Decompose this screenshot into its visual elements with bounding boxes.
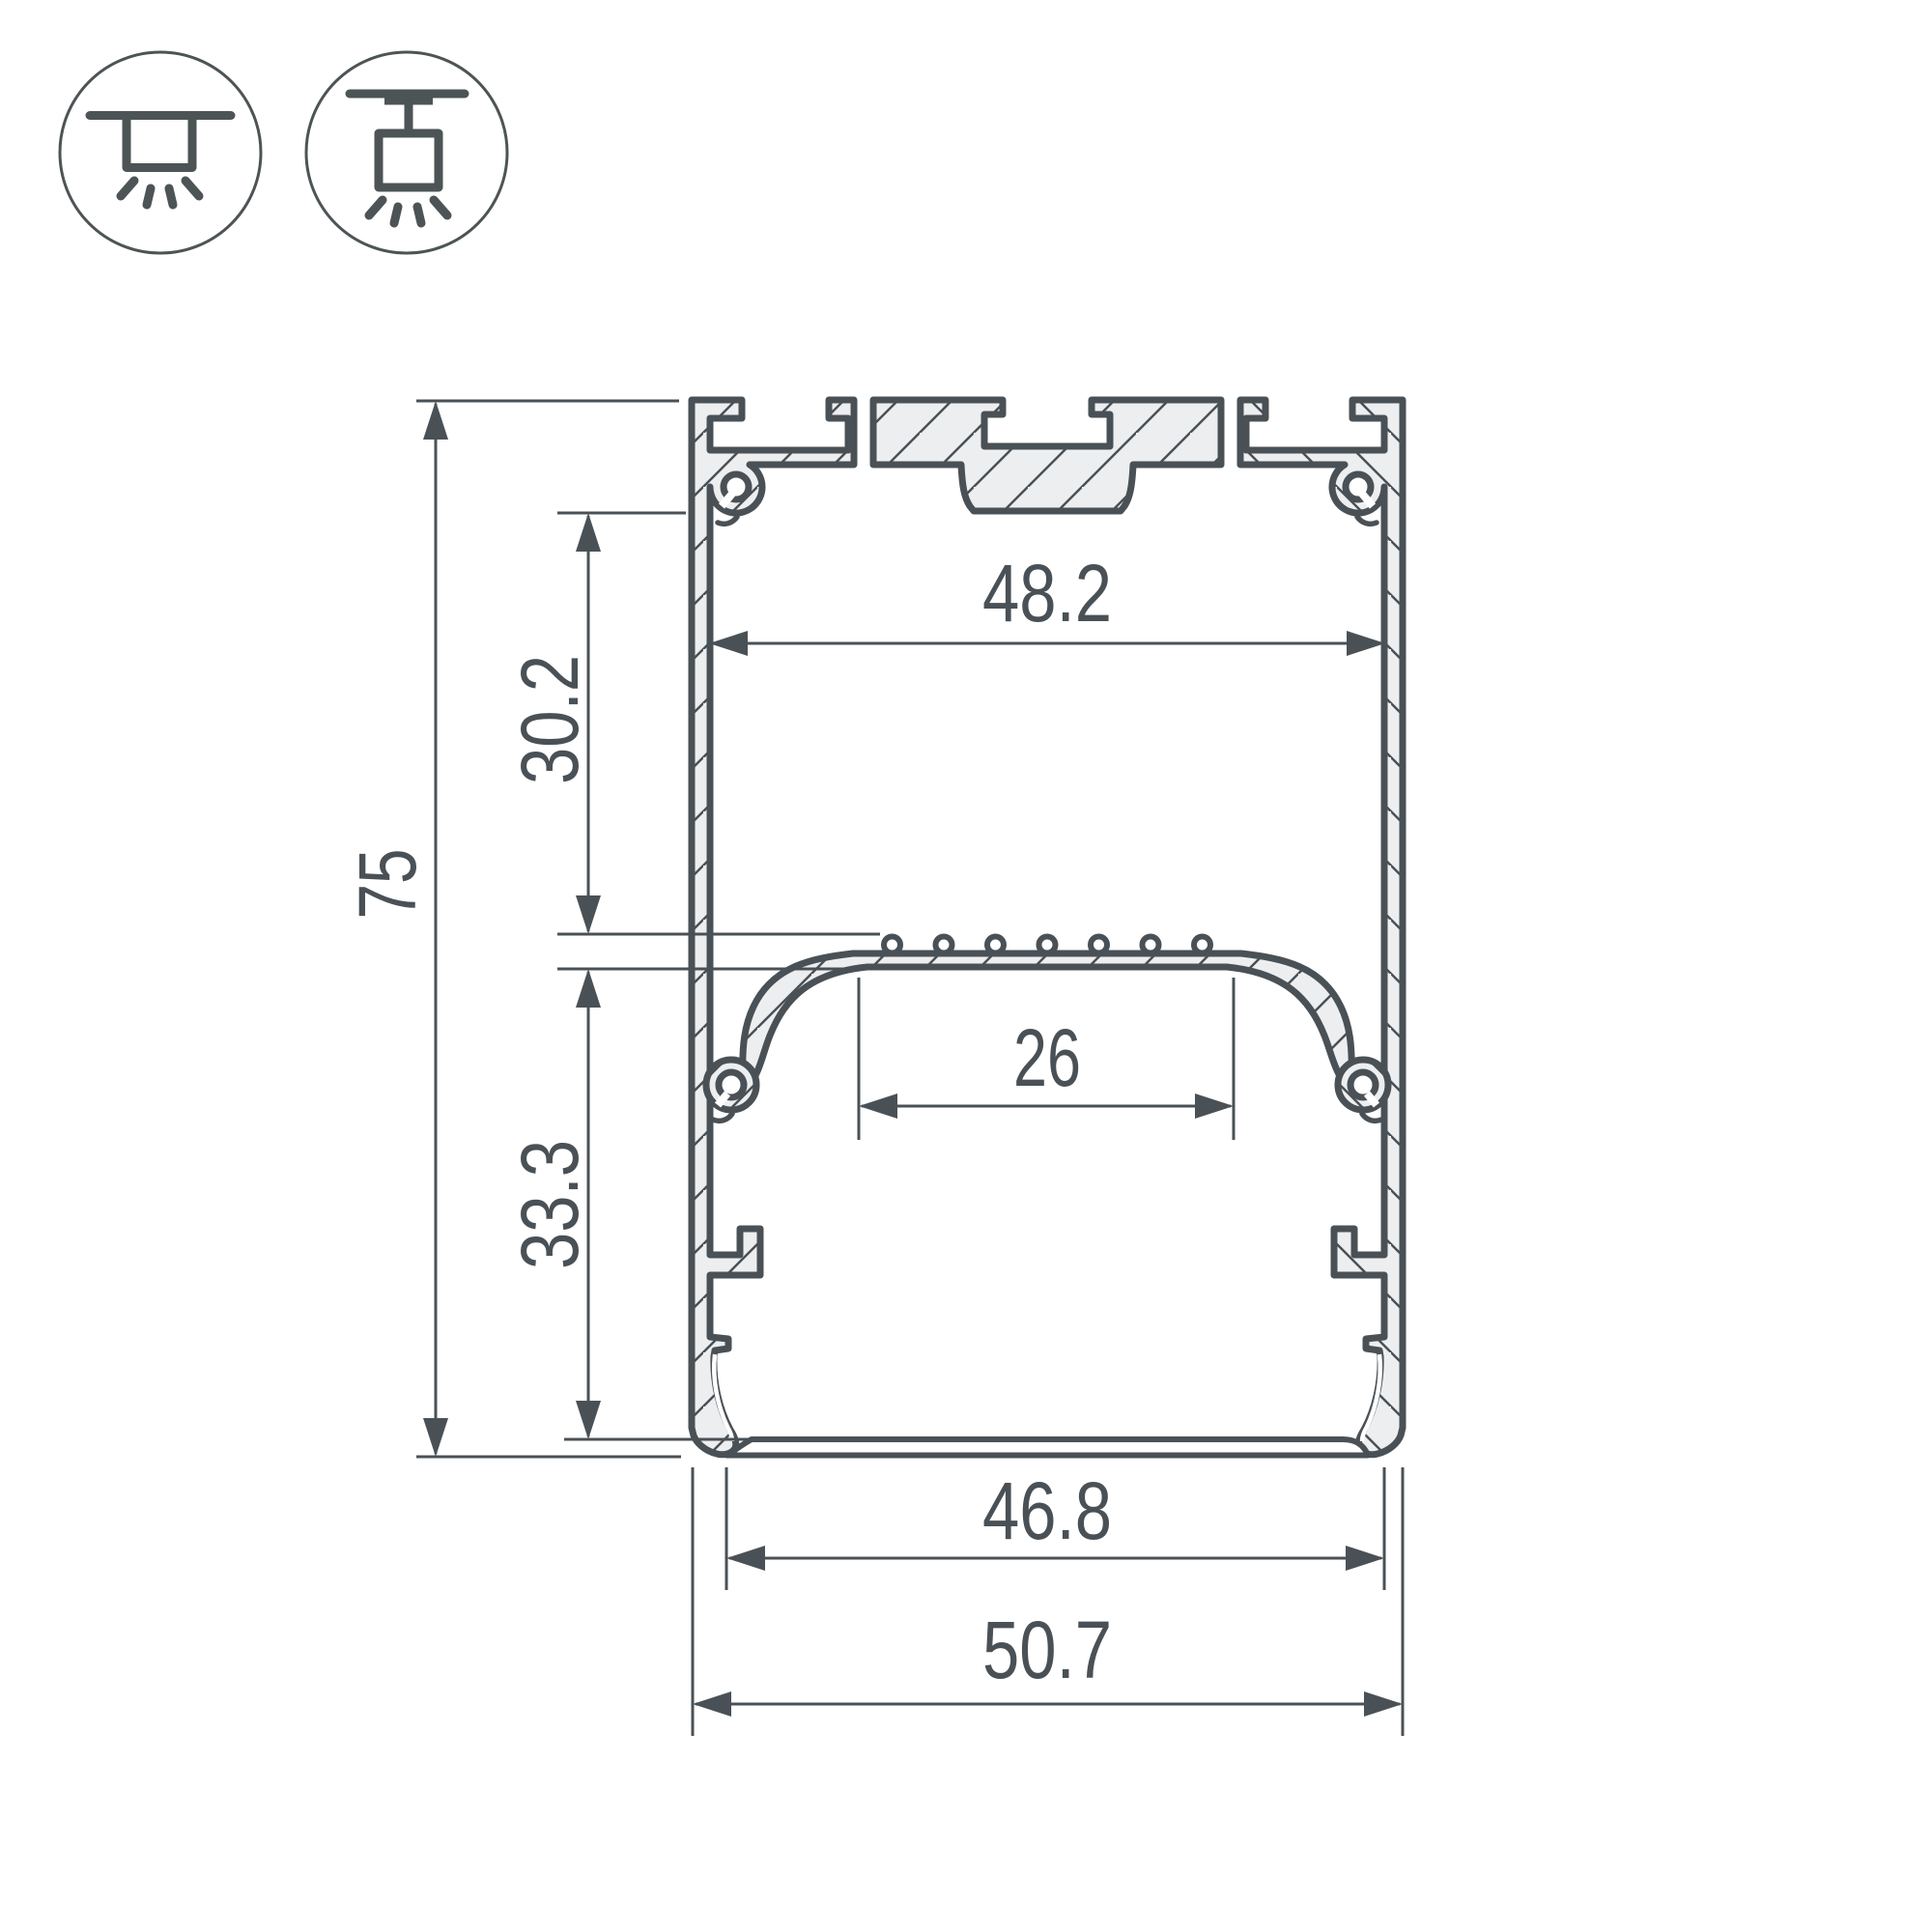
svg-text:75: 75 [342,849,433,920]
svg-text:33.3: 33.3 [504,1140,595,1269]
svg-text:26: 26 [1013,1012,1081,1103]
svg-text:48.2: 48.2 [982,548,1112,639]
svg-text:46.8: 46.8 [982,1465,1112,1556]
svg-text:30.2: 30.2 [504,655,595,784]
svg-text:50.7: 50.7 [982,1605,1112,1695]
